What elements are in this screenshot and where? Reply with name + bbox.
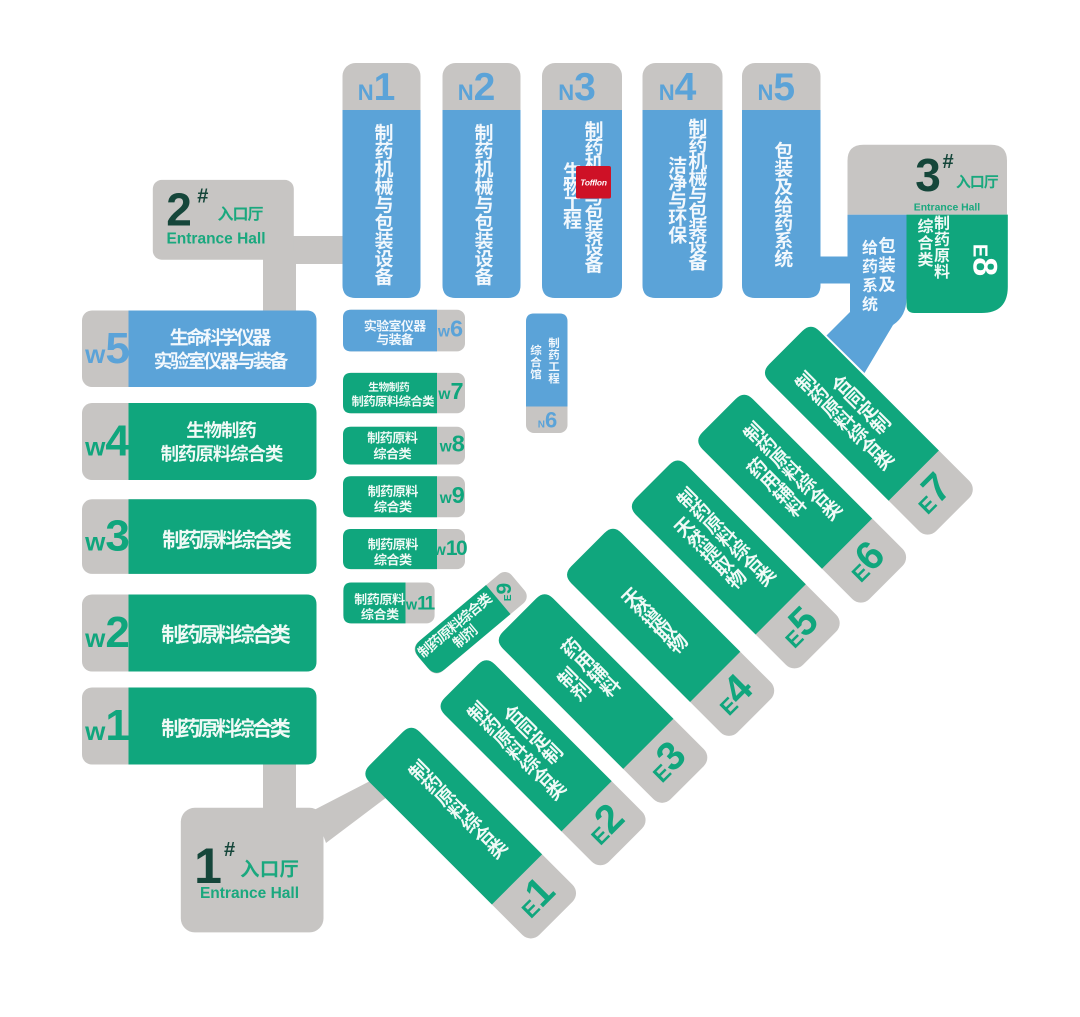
svg-text:w11: w11 [405, 594, 436, 615]
svg-text:#: # [224, 839, 235, 861]
svg-text:Entrance Hall: Entrance Hall [914, 203, 981, 214]
svg-text:3: 3 [915, 149, 941, 201]
svg-text:Entrance Hall: Entrance Hall [200, 885, 299, 902]
svg-text:#: # [197, 186, 208, 208]
svg-text:2: 2 [166, 184, 192, 236]
svg-text:Tofflon: Tofflon [580, 178, 607, 188]
svg-text:#: # [942, 151, 953, 173]
svg-text:Entrance Hall: Entrance Hall [166, 231, 265, 248]
